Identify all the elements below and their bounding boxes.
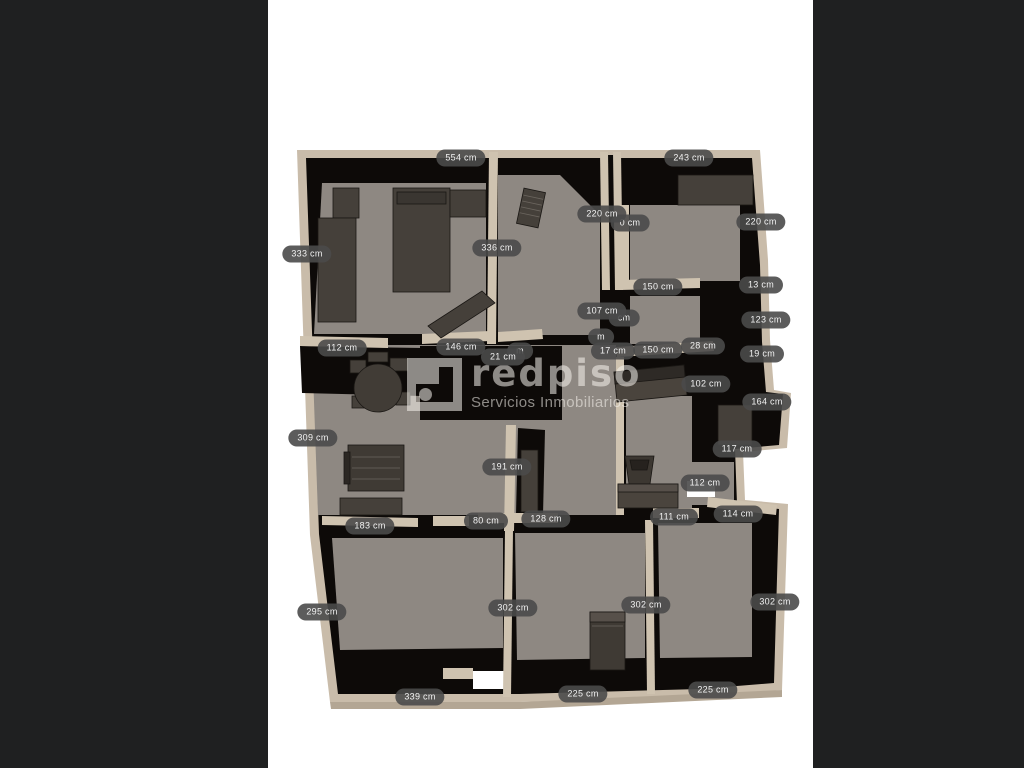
dimension-label: 295 cm <box>297 604 346 621</box>
dimension-label: 220 cm <box>577 206 626 223</box>
dimension-label: 220 cm <box>736 214 785 231</box>
shelf-unit <box>344 445 404 491</box>
dimension-label: 13 cm <box>739 277 783 294</box>
dimension-label: 117 cm <box>713 441 762 458</box>
dimension-label: 302 cm <box>488 600 537 617</box>
dimension-label: 302 cm <box>621 597 670 614</box>
dimension-label: 112 cm <box>681 475 730 492</box>
dimension-label: 336 cm <box>472 240 521 257</box>
dimension-label: 146 cm <box>436 339 485 356</box>
dimension-label: 191 cm <box>482 459 531 476</box>
dimension-label: 112 cm <box>318 340 367 357</box>
desk <box>450 190 486 217</box>
bed-pillow <box>397 192 446 204</box>
wardrobe <box>318 218 356 322</box>
dimension-label: 225 cm <box>688 682 737 699</box>
cabinet <box>333 188 359 218</box>
dimension-label: 164 cm <box>742 394 791 411</box>
closet <box>678 175 753 205</box>
dimension-label: 243 cm <box>664 150 713 167</box>
side-cabinet <box>718 405 752 445</box>
dimension-label: 123 cm <box>741 312 790 329</box>
brand-tagline: Servicios Inmobiliarios <box>471 394 641 411</box>
dining-table-and-chairs <box>350 352 410 412</box>
dimension-label: 107 cm <box>577 303 626 320</box>
dimension-label: 80 cm <box>464 513 508 530</box>
logo-dot <box>419 388 432 401</box>
logo-room-shape <box>416 367 439 384</box>
dimension-label: 225 cm <box>558 686 607 703</box>
dimension-label: 19 cm <box>740 346 784 363</box>
dimension-label: 333 cm <box>282 246 331 263</box>
dimension-label: 554 cm <box>436 150 485 167</box>
redpiso-logo-icon <box>407 358 462 411</box>
dimension-label: 150 cm <box>633 279 682 296</box>
dimension-label: 339 cm <box>395 689 444 706</box>
dimension-label: 17 cm <box>591 343 635 360</box>
dimension-label: 128 cm <box>521 511 570 528</box>
low-cabinet <box>340 498 402 515</box>
dimension-label: 114 cm <box>714 506 763 523</box>
washing-machine <box>590 612 625 670</box>
screenshot-root: { "page": { "background_color": "#1f2021… <box>0 0 1024 768</box>
dimension-label: 150 cm <box>633 342 682 359</box>
dimension-label: 309 cm <box>288 430 337 447</box>
dimension-label: 21 cm <box>481 349 525 366</box>
dimension-label: 102 cm <box>681 376 730 393</box>
dimension-label: 111 cm <box>650 509 698 526</box>
dimension-label: 28 cm <box>681 338 725 355</box>
dimension-label: 302 cm <box>750 594 799 611</box>
planter <box>625 456 654 484</box>
dimension-label: 183 cm <box>345 518 394 535</box>
counter <box>618 484 678 508</box>
